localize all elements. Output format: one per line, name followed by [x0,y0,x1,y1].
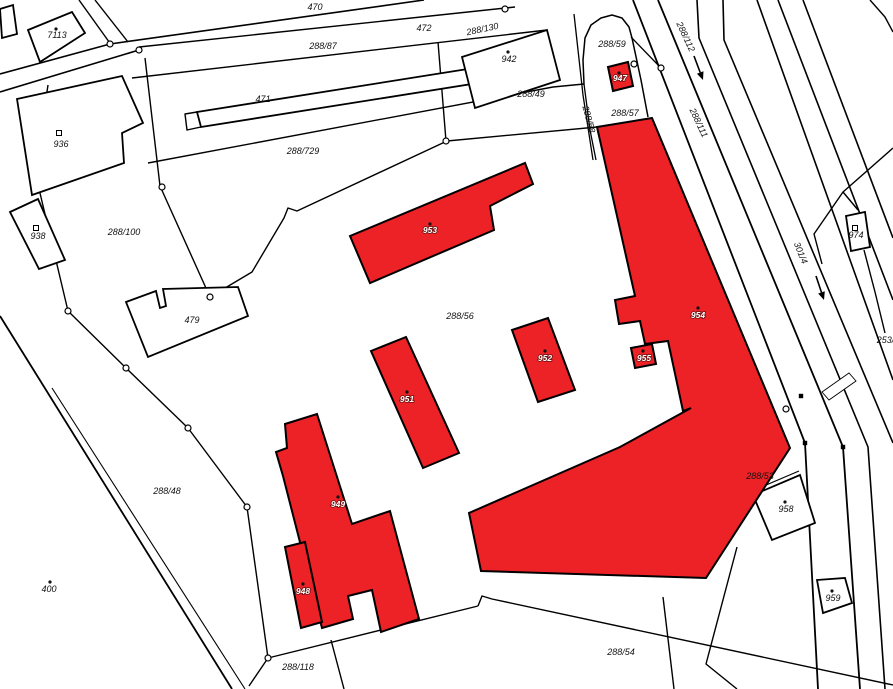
parcel-label-288-59: 288/59 [597,39,626,49]
map-canvas: 7113470472288/87288/130942288/49288/5994… [0,0,893,689]
building-number-949: 949 [331,499,345,509]
building-number-952: 952 [538,353,552,363]
boundary-point-marker [799,394,803,398]
building-number-948: 948 [296,586,310,596]
parcel-label-288-130: 288/130 [464,21,499,38]
parcel-corner-top-left [0,5,17,38]
building-number-954: 954 [691,310,705,320]
road-right-6 [778,0,893,300]
parcel-label-400: 400 [41,584,56,594]
vertex-circle-marker [658,65,664,71]
parcel-label-936: 936 [53,139,68,149]
parcel-label-288-56: 288/56 [445,311,474,321]
vertex-circle-marker [502,6,508,12]
parcel-label-472: 472 [416,23,431,33]
parcel-label-301-4: 301/4 [792,241,810,266]
parcel-label-942: 942 [501,54,516,64]
boundary-288-100-right [160,186,210,297]
lane-stub-b [79,0,112,46]
building-471 [197,68,478,127]
vertex-circle-marker [107,41,113,47]
boundary-288-56-top [210,127,597,297]
vertex-circle-marker [783,406,789,412]
connector-942-left [438,42,446,141]
road-right-7 [803,0,893,238]
parcel-label-253-4: 253/4 [876,335,893,345]
boundary-288-118-right [331,640,344,689]
parcel-label-7113: 7113 [47,30,66,40]
vertex-circle-marker [244,504,250,510]
parcel-label-288-48: 288/48 [152,486,181,496]
parcel-label-288-87: 288/87 [308,41,338,51]
vertex-circle-marker [159,184,165,190]
building-square-marker [34,226,39,231]
building-square-marker [57,131,62,136]
vertex-circle-marker [136,47,142,53]
parcel-label-471: 471 [255,94,270,104]
vertex-circle-marker [265,655,271,661]
building-942 [462,30,560,108]
building-number-955: 955 [637,353,651,363]
parcel-label-288-111: 288/111 [687,106,710,139]
parcel-label-959: 959 [825,593,840,603]
parcel-label-479: 479 [184,315,199,325]
parcel-label-470: 470 [307,2,322,12]
vertex-circle-marker [185,425,191,431]
parcel-label-288-57: 288/57 [610,108,640,118]
vertex-circle-marker [65,308,71,314]
boundary-point-marker [803,441,807,445]
road-left-edge [0,316,232,689]
road-left-edge-inner [52,388,245,689]
lane-stub-a [95,0,128,42]
vertex-circle-marker [631,61,637,67]
one-way-arrow-north-head [697,71,704,80]
building-number-953: 953 [423,225,437,235]
one-way-arrow-north [694,56,700,73]
parcel-label-938: 938 [30,231,45,241]
one-way-arrow-south [816,276,821,292]
parcel-label-288-58: 288/58 [580,104,597,134]
corner-arc-top-right [870,0,893,32]
vertex-circle-marker [207,294,213,300]
boundary-right-spur [864,250,885,333]
parcel-label-288-53: 288/53 [745,471,774,481]
building-number-951: 951 [400,394,414,404]
vertex-circle-marker [123,365,129,371]
building-951 [371,337,459,468]
boundary-936-right [145,58,160,186]
parcel-label-958: 958 [778,504,793,514]
boundary-point-marker [841,445,845,449]
parcel-label-288-100: 288/100 [107,227,141,237]
boundary-bottom-1 [249,606,478,686]
parcel-label-288-118: 288/118 [281,662,314,672]
boundary-288-54-left [663,597,674,689]
vertex-circle-marker [443,138,449,144]
building-936 [17,76,143,195]
one-way-arrow-south-head [818,291,825,300]
building-number-947: 947 [613,73,628,83]
strip-288-58-outer [574,14,593,160]
parcel-label-974: 974 [848,230,863,240]
parcel-label-288-729: 288/729 [286,146,320,156]
cadastral-map: 7113470472288/87288/130942288/49288/5994… [0,0,893,689]
parcel-label-288-49: 288/49 [516,89,545,99]
building-953 [350,163,533,283]
parcel-label-288-54: 288/54 [606,647,635,657]
